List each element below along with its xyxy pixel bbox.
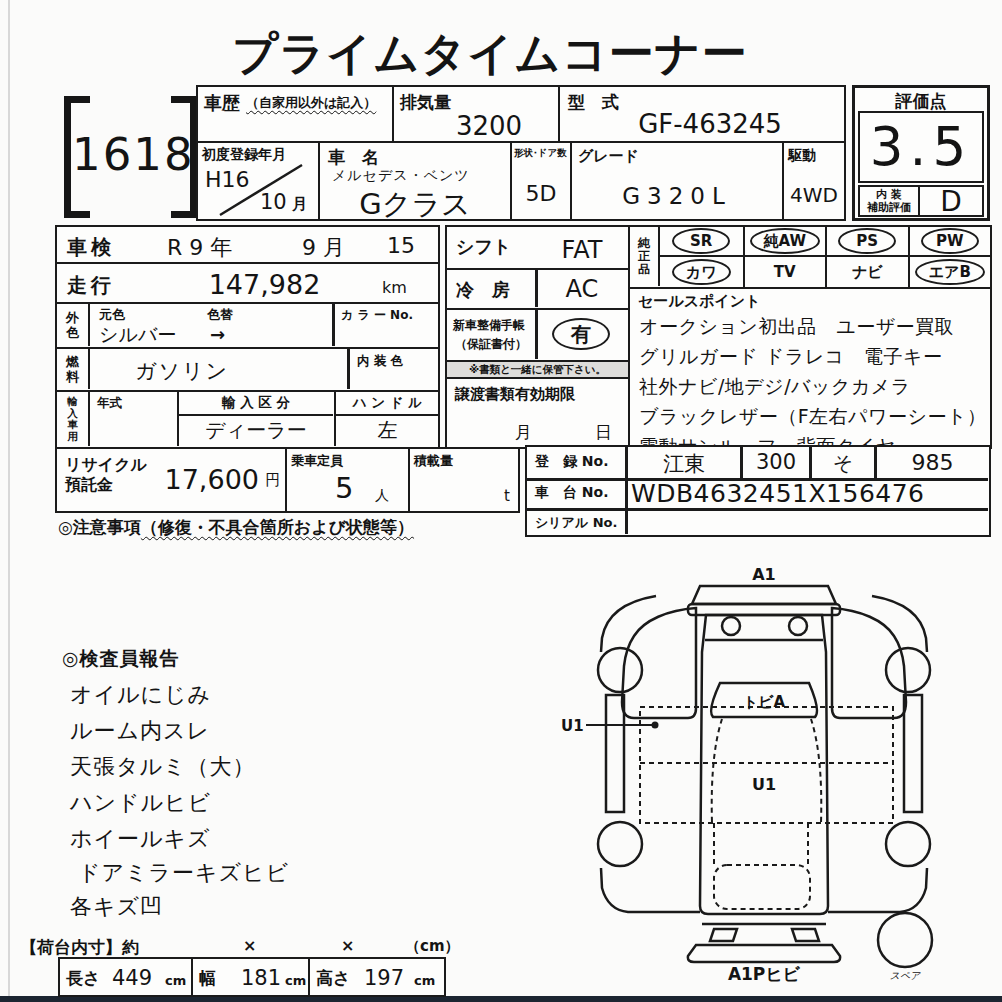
shaken-month: 9 月 <box>302 233 345 263</box>
displacement-value: 3200 <box>444 111 534 141</box>
first-reg-month: 10 <box>260 190 287 214</box>
load-cell: 積載量 t <box>408 447 520 513</box>
aircon-row: 冷 房 AC <box>445 268 630 310</box>
genuine-part-kawa: カワ <box>660 257 743 287</box>
import-row: 輸 入 車 用 年式 輸 入 区 分 ディーラー ハ ン ド ル 左 <box>55 390 440 449</box>
recycle-value: 17,600 <box>139 464 259 495</box>
capacity-value: 5 <box>335 471 353 505</box>
inspector-item: ホイールキズ <box>70 824 211 854</box>
page-title: プライムタイムコーナー <box>170 24 810 84</box>
grade-cell: グレード G320L <box>570 141 784 221</box>
mileage-row: 走行 147,982 km <box>55 262 440 304</box>
cabin-dashed-left <box>712 719 722 823</box>
fuel-side-label: 燃 料 <box>57 349 90 389</box>
capacity-label: 乗車定員 <box>291 452 343 470</box>
first-reg-year: H16 <box>205 167 250 192</box>
shift-label: シフト <box>456 235 511 259</box>
u1-callout <box>586 722 659 729</box>
spare-tire <box>878 913 932 967</box>
width-label: 幅 <box>199 967 216 990</box>
lot-bracket-left-cap-bottom <box>64 211 90 218</box>
genuine-part-navi-badge: ナビ <box>852 259 883 285</box>
capacity-unit: 人 <box>375 487 389 505</box>
genuine-part-ps: PS <box>825 227 908 257</box>
inspector-item: 天張タルミ（大） <box>70 752 256 782</box>
genuine-part-tv-badge: TV <box>774 259 796 285</box>
genuine-parts-label: 純 正 品 <box>630 227 660 286</box>
history-note: （自家用以外は記入） <box>246 94 376 112</box>
genuine-parts-grid: SR 純AW PS PW カワ TV ナビ エアB <box>660 227 990 287</box>
exterior-color-value: シルバー <box>99 322 176 348</box>
model-code-value: GF-463245 <box>620 109 800 139</box>
rocker-panel-left <box>606 695 624 812</box>
genuine-part-sr-badge: SR <box>672 228 730 254</box>
sales-point-line: オークション初出品 ユーザー買取 <box>630 311 990 341</box>
mileage-label: 走行 <box>67 272 115 299</box>
drive-value: 4WD <box>784 183 844 207</box>
record-book-label2: （保証書付） <box>455 336 527 353</box>
inspector-item: ルーム内スレ <box>70 716 210 746</box>
car-body-outline <box>700 615 828 914</box>
interior-color-divider <box>347 349 350 389</box>
reg-no-number: 985 <box>877 450 988 475</box>
caution-prefix: ◎注意事項 <box>58 517 141 537</box>
transfer-docs-day: 日 <box>595 421 612 444</box>
serial-no-label: シリアル No. <box>535 514 618 532</box>
transfer-docs-label: 譲渡書類有効期限 <box>455 385 575 404</box>
doors-cell: 形状･ドア数 5D <box>510 141 572 221</box>
recycle-label1: リサイクル <box>65 455 147 476</box>
lot-bracket-right-cap-top <box>171 96 197 103</box>
width-value: 181 <box>241 966 281 990</box>
rear-reflector-left <box>710 929 737 941</box>
score-label: 評価点 <box>855 90 987 113</box>
genuine-part-airb-badge: エアB <box>915 259 985 285</box>
cargo-dims-label: 【荷台内寸】約 <box>20 936 139 959</box>
inspector-item: 各キズ凹 <box>70 892 163 922</box>
load-label: 積載量 <box>414 452 453 470</box>
rocker-panel-right <box>904 695 922 812</box>
hood-detail-left <box>722 617 740 635</box>
front-wheel-left <box>598 648 642 692</box>
import-division-value: ディーラー <box>179 417 333 444</box>
lot-number: 16185 <box>72 128 190 181</box>
handle-cell: ハ ン ド ル 左 <box>334 392 439 446</box>
genuine-part-navi: ナビ <box>825 257 908 287</box>
capacity-cell: 乗車定員 5 人 <box>285 447 410 513</box>
registration-box: 登 録 No. 江東 300 そ 985 車 台 No. WDB4632451X… <box>525 445 991 537</box>
score-box: 評価点 3.5 内 装 補助評価 D <box>852 85 990 221</box>
cargo-mat-dashed <box>714 865 810 909</box>
inspector-item: ハンドルヒビ <box>70 788 211 818</box>
shaken-year: R 9 年 <box>167 233 232 263</box>
color-no-divider <box>332 304 335 346</box>
rear-reflector-right <box>792 929 819 941</box>
record-book-row: 新車整備手帳 （保証書付） 有 <box>445 308 630 362</box>
genuine-part-ps-badge: PS <box>838 228 896 254</box>
rear-bumper <box>688 945 840 962</box>
chassis-no-value: WDB4632451X156476 <box>631 479 925 508</box>
aircon-label: 冷 房 <box>456 278 510 302</box>
record-book-value: 有 <box>552 318 610 350</box>
hood-detail-right <box>789 617 807 635</box>
reg-no-kana: そ <box>812 450 874 477</box>
color-change-arrow: → <box>210 324 225 345</box>
model-code-cell: 型 式 GF-463245 <box>558 85 846 143</box>
genuine-part-kawa-badge: カワ <box>672 259 731 285</box>
reg-no-class: 300 <box>743 450 809 474</box>
recycle-unit: 円 <box>265 471 280 490</box>
inspector-item: ドアミラーキズヒビ <box>78 858 289 888</box>
doors-label: 形状･ドア数 <box>514 147 567 160</box>
exterior-color-row: 外 色 元色 色替 シルバー → カ ラ ー No. <box>55 302 440 349</box>
interior-grade-label: 内 装 補助評価 <box>858 185 920 217</box>
front-bumper-lip <box>688 604 840 615</box>
handle-label: ハ ン ド ル <box>336 394 439 416</box>
genuine-parts-box: 純 正 品 SR 純AW PS PW カワ TV ナビ エアB <box>628 225 992 289</box>
rear-wheel-left <box>598 822 642 866</box>
front-wheel-right <box>886 648 930 692</box>
diagram-label-u1-callout: U1 <box>561 717 584 735</box>
caution-paren: （修復・不具合箇所および状態等） <box>141 517 414 537</box>
fuel-row: 燃 料 ガソリン 内 装 色 <box>55 347 440 392</box>
history-cell: 車歴 （自家用以外は記入） <box>196 85 394 143</box>
first-reg-month-unit: 月 <box>292 195 307 214</box>
first-reg-cell: 初度登録年月 H16 10 月 <box>196 141 320 221</box>
cargo-dims-unit: （cm） <box>405 937 460 956</box>
cabin-dashed-right <box>811 719 821 823</box>
length-unit: cm <box>165 973 186 988</box>
load-unit: t <box>504 487 510 505</box>
handle-value: 左 <box>336 417 439 444</box>
chassis-no-label: 車 台 No. <box>535 484 609 502</box>
car-maker: メルセデス・ベンツ <box>332 167 470 185</box>
cargo-dims-x1: × <box>243 936 256 955</box>
history-label: 車歴 <box>204 91 240 115</box>
height-label: 高さ <box>316 967 350 990</box>
genuine-part-tv: TV <box>743 257 826 287</box>
record-book-label1: 新車整備手帳 <box>453 317 525 334</box>
diagram-label-spare: スペア <box>890 970 921 981</box>
recycle-cell: リサイクル 預託金 17,600 円 <box>55 447 287 513</box>
car-damage-diagram: A1 トビA U1 U1 A1Pヒビ スペア <box>556 556 1002 1002</box>
import-division-label: 輸 入 区 分 <box>179 394 333 416</box>
diagram-label-windshield: トビA <box>743 693 786 711</box>
model-code-label: 型 式 <box>568 91 619 114</box>
import-division-cell: 輸 入 区 分 ディーラー <box>177 392 334 446</box>
genuine-part-sr: SR <box>660 227 743 257</box>
record-book-divider <box>535 310 538 359</box>
caution-line: ◎注意事項（修復・不具合箇所および状態等） <box>58 516 414 539</box>
sales-point-line: ブラックレザー（F左右パワーシート） <box>630 401 990 431</box>
reg-no-area: 江東 <box>628 450 740 478</box>
genuine-part-airb: エアB <box>908 257 991 287</box>
sales-points-label: セールスポイント <box>630 289 990 311</box>
genuine-part-aw-badge: 純AW <box>750 228 820 254</box>
floor-dashed-rect <box>640 707 893 823</box>
genuine-part-pw: PW <box>908 227 991 257</box>
color-change-label: 色替 <box>207 306 233 324</box>
length-value: 449 <box>112 966 152 990</box>
fuel-value: ガソリン <box>102 357 262 385</box>
diagram-label-a1: A1 <box>752 565 776 584</box>
import-side-label: 輸 入 車 用 <box>57 392 90 446</box>
car-name-value: Gクラス <box>320 185 510 225</box>
diagram-label-bottom: A1Pヒビ <box>728 964 801 984</box>
recycle-label2: 預託金 <box>65 475 113 496</box>
front-door-left <box>622 608 696 718</box>
front-door-right <box>832 608 906 718</box>
shift-value: FAT <box>537 236 627 264</box>
genuine-part-pw-badge: PW <box>921 228 979 254</box>
grade-label: グレード <box>578 147 639 166</box>
inspector-item: オイルにじみ <box>70 680 211 710</box>
mileage-value: 147,982 <box>172 269 357 300</box>
shaken-label: 車検 <box>67 234 115 261</box>
reg-no-label: 登 録 No. <box>535 453 609 471</box>
exterior-color-side-label: 外 色 <box>57 304 90 346</box>
length-label: 長さ <box>66 967 100 990</box>
width-cell: 幅 181 cm <box>191 957 311 997</box>
shaken-row: 車検 R 9 年 9 月 15 日 <box>55 225 440 264</box>
rear-fender-left <box>601 868 700 912</box>
car-name-cell: 車 名 メルセデス・ベンツ Gクラス <box>318 141 512 221</box>
transfer-docs-row: 譲渡書類有効期限 月 日 <box>445 377 630 449</box>
height-value: 197 <box>364 966 404 990</box>
drive-cell: 駆動 4WD <box>782 141 846 221</box>
color-no-label: カ ラ ー No. <box>341 307 413 324</box>
registration-row-divider2 <box>527 508 988 511</box>
height-cell: 高さ 197 cm <box>308 957 446 997</box>
genuine-part-aw: 純AW <box>743 227 826 257</box>
shift-row: シフト FAT <box>445 225 630 270</box>
sales-point-line: 社外ナビ/地デジ/バックカメラ <box>630 371 990 401</box>
mileage-unit: km <box>382 278 407 297</box>
lot-bracket-left <box>64 96 71 218</box>
scan-edge-left <box>8 0 10 1002</box>
grade-value: G320L <box>572 183 782 209</box>
import-year-label: 年式 <box>97 395 122 412</box>
inspector-report-title: ◎検査員報告 <box>62 646 180 672</box>
diagram-label-u1-center: U1 <box>752 775 776 794</box>
aircon-value: AC <box>537 275 627 303</box>
lot-bracket-right-cap-bottom <box>171 211 197 218</box>
height-unit: cm <box>414 973 435 988</box>
lot-bracket-left-cap-top <box>64 96 90 103</box>
sales-points-box: セールスポイント オークション初出品 ユーザー買取 グリルガード ドラレコ 電子… <box>628 287 992 449</box>
interior-grade-value: D <box>918 185 984 217</box>
drive-label: 駆動 <box>788 147 816 165</box>
width-unit: cm <box>285 973 306 988</box>
displacement-cell: 排気量 3200 <box>392 85 560 143</box>
length-cell: 長さ 449 cm <box>58 957 194 997</box>
sales-point-line: グリルガード ドラレコ 電子キー <box>630 341 990 371</box>
interior-color-label: 内 装 色 <box>357 353 403 370</box>
transfer-docs-month: 月 <box>515 421 532 444</box>
rear-fender-right <box>828 868 927 912</box>
cargo-dims-x2: × <box>341 936 354 955</box>
doors-value: 5D <box>512 181 570 206</box>
front-bumper <box>692 586 836 604</box>
score-value: 3.5 <box>858 116 984 177</box>
rear-wheel-right <box>886 822 930 866</box>
car-name-label: 車 名 <box>328 146 379 169</box>
